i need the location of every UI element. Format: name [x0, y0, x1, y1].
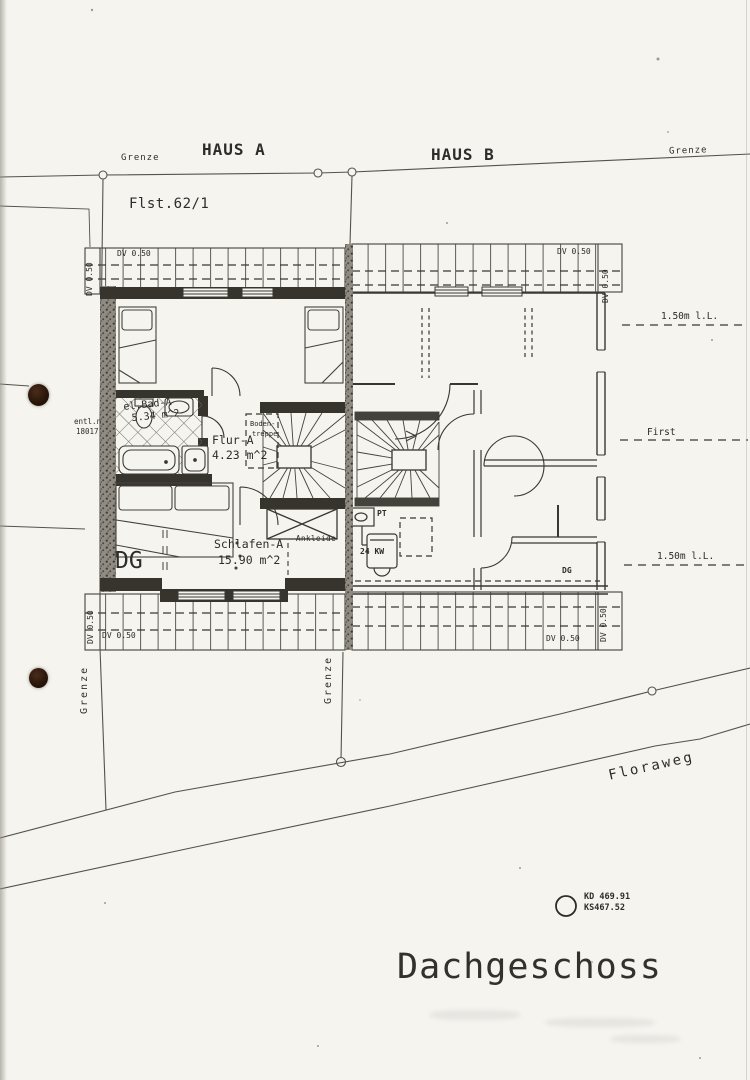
grenze-label-top-right: Grenze	[669, 145, 708, 157]
scan-edge-left	[0, 0, 7, 1080]
bedroom-area: 15.90 m^2	[218, 554, 280, 567]
dv-label-top-right-h: DV 0.50	[557, 247, 591, 256]
grenze-line-mid-lower	[341, 652, 343, 760]
grenze-label-bottom-mid: Grenze	[323, 656, 335, 704]
pt-label: PT	[377, 509, 387, 518]
hole-punch-top	[28, 384, 49, 406]
drawing-title: Dachgeschoss	[397, 947, 662, 987]
haus-a-label: HAUS A	[202, 141, 266, 159]
dv-label-bottom-right-h: DV 0.50	[546, 634, 580, 643]
boiler-label: 24 KW	[360, 547, 384, 556]
hole-punch-bottom	[29, 668, 48, 688]
knee-wall-dashed-lines	[422, 308, 532, 378]
bed-single-left	[119, 307, 156, 383]
haus-b-fixtures	[352, 508, 432, 576]
dv-label-bottom-left-h: DV 0.50	[102, 631, 136, 640]
hall-area: 4.23 m^2	[212, 449, 267, 462]
party-wall	[345, 244, 353, 650]
grenze-line-mid-upper	[350, 176, 352, 244]
scanned-floor-plan-sheet: Grenze HAUS A HAUS B Grenze Flst.62/1 DV…	[0, 0, 750, 1080]
vent-note-line2: 18017	[76, 428, 99, 437]
wardrobe-marks	[163, 530, 167, 570]
attic-stair-label-1: Boden-	[250, 420, 275, 428]
manhole-symbol	[556, 896, 576, 916]
bath-bottom-wall	[116, 474, 212, 486]
roof-band-top	[85, 244, 622, 294]
dv-label-bottom-right-v: DV 0.50	[599, 608, 608, 642]
floor-plan-drawing	[0, 0, 750, 1080]
grenze-label-bottom-left: Grenze	[79, 666, 91, 714]
stair-haus-a	[263, 413, 345, 498]
scan-edge-right	[746, 0, 747, 1080]
floor-tag-haus-a: DG	[115, 548, 143, 574]
grenze-label-top-left: Grenze	[121, 153, 160, 163]
bed-single-right	[305, 307, 343, 383]
height-line-label-lower: 1.50m l.L.	[654, 552, 717, 563]
neighbor-line-3	[0, 526, 85, 529]
street-edge-upper	[0, 668, 750, 838]
haus-b-label: HAUS B	[431, 146, 495, 164]
scan-smudge-2	[545, 1018, 655, 1027]
scan-smudge-3	[610, 1035, 680, 1043]
scan-smudge-1	[430, 1010, 520, 1020]
hall-name: Flur-A	[212, 434, 254, 447]
stair-haus-b	[355, 412, 439, 506]
roof-annotation-lines	[620, 325, 748, 565]
parcel-label: Flst.62/1	[129, 196, 209, 212]
street-edge-lower	[0, 724, 750, 889]
floor-tag-haus-b: DG	[562, 566, 572, 575]
height-line-label-upper: 1.50m l.L.	[658, 312, 721, 323]
stair-a-top-wall	[260, 402, 345, 413]
bedroom-name: Schlafen-A	[214, 538, 283, 551]
neighbor-line-1	[0, 206, 90, 247]
survey-cover-label: KD 469.91	[584, 893, 630, 903]
attic-stair-label-2: treppe	[252, 430, 277, 438]
street-lines	[0, 668, 750, 889]
dashed-reserve-area	[400, 518, 432, 556]
dressing-label: Ankleide	[296, 535, 336, 544]
dv-label-top-right-v: DV 0.50	[601, 269, 610, 303]
vent-note-line1: entl.n	[74, 418, 101, 427]
stair-a-bottom-wall	[260, 498, 345, 509]
survey-invert-label: KS467.52	[584, 904, 625, 914]
dv-label-top-left-h: DV 0.50	[117, 249, 151, 258]
bath-top-wall	[116, 390, 204, 398]
ridge-label: First	[644, 428, 679, 439]
dv-label-bottom-left-v: DV 0.50	[86, 610, 95, 644]
haus-a-left-wall	[100, 286, 116, 592]
dv-label-top-left-v: DV 0.50	[85, 262, 94, 296]
